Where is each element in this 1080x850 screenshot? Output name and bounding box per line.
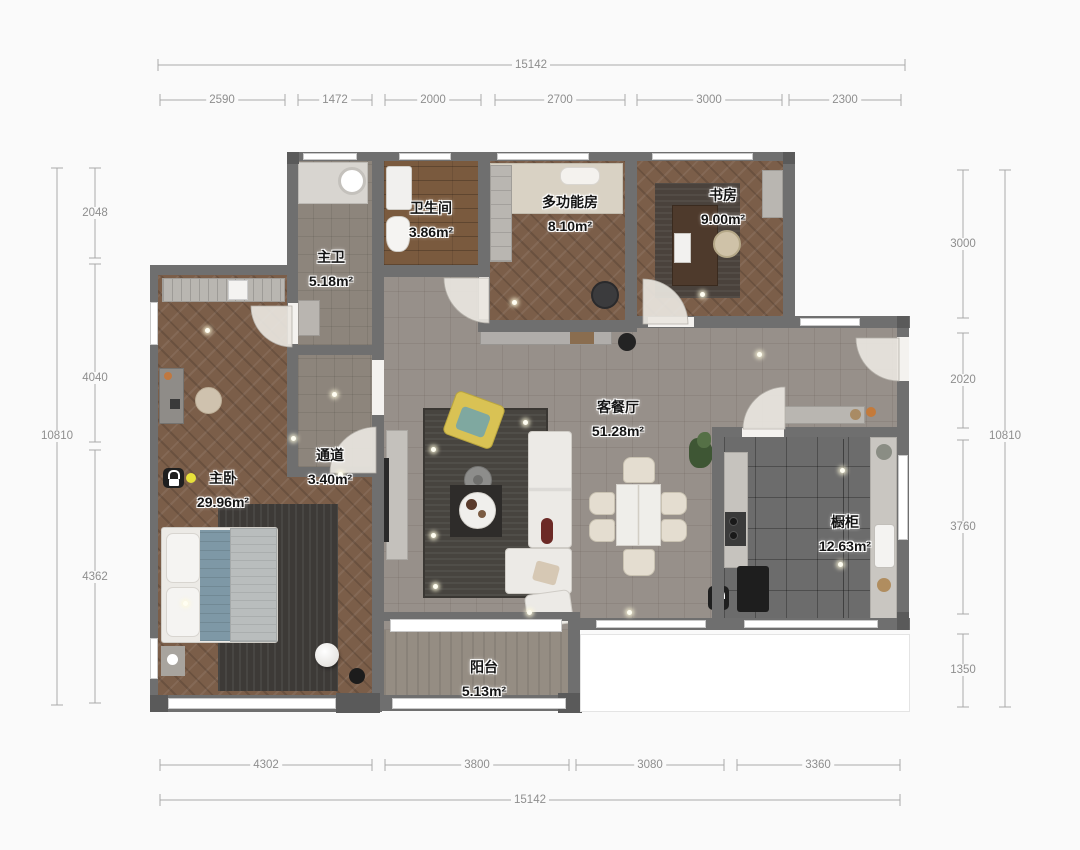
kitchen-sink <box>874 524 895 568</box>
side-table-top <box>473 475 483 485</box>
study-cabinet <box>762 170 783 218</box>
dining-chair <box>589 519 615 542</box>
dim-bottom-seg: 3080 <box>634 759 666 771</box>
ceiling-light <box>433 584 438 589</box>
dim-bottom-total: 15142 <box>511 794 549 806</box>
window-top-masterbath <box>303 153 357 160</box>
kitchen-counter-left <box>724 452 748 568</box>
dim-top-seg: 3000 <box>693 94 725 106</box>
multi-cabinet <box>490 165 512 262</box>
window-right-kitchen <box>898 455 908 540</box>
dim-bottom-seg: 3360 <box>802 759 834 771</box>
room-area: 51.28m² <box>592 420 644 444</box>
room-name: 主卫 <box>309 246 353 270</box>
ceiling-light <box>205 328 210 333</box>
window-living-south <box>596 620 706 628</box>
window-top-multiroom <box>497 153 589 160</box>
room-label-balcony: 阳台 5.13m² <box>462 656 506 704</box>
ceiling-light <box>838 562 843 567</box>
study-chair <box>713 230 741 258</box>
ceiling-light <box>431 447 436 452</box>
dim-top-seg: 2000 <box>417 94 449 106</box>
hall-chair-black <box>618 333 636 351</box>
room-name: 橱柜 <box>819 511 871 535</box>
tray-item <box>478 510 486 518</box>
wardrobe <box>162 278 285 302</box>
dim-top-total: 15142 <box>512 59 550 71</box>
wall-corner <box>783 152 795 164</box>
ceiling-light <box>840 468 845 473</box>
bed-pillow <box>166 587 200 637</box>
room-name: 书房 <box>701 184 745 208</box>
door-leaf-entry <box>897 337 909 381</box>
door-leaf-bathroom <box>479 277 489 319</box>
dim-top-seg: 2590 <box>206 94 238 106</box>
fridge <box>737 566 769 612</box>
dim-left-seg: 4040 <box>79 372 111 384</box>
room-label-corridor: 通道 3.40m² <box>308 444 352 492</box>
dim-top-seg: 2300 <box>829 94 861 106</box>
room-name: 卫生间 <box>409 197 453 221</box>
room-name: 多功能房 <box>542 191 598 215</box>
room-area: 5.18m² <box>309 270 353 294</box>
exterior-void <box>795 150 910 316</box>
laptop <box>674 233 691 263</box>
plant-leaf <box>697 432 711 448</box>
ceiling-light <box>627 610 632 615</box>
dim-left-total: 10810 <box>38 430 76 442</box>
room-area: 12.63m² <box>819 535 871 559</box>
dim-right-total: 10810 <box>986 430 1024 442</box>
wall-kitchen-top <box>712 427 897 437</box>
ceiling-light <box>332 392 337 397</box>
ceiling-light <box>183 601 188 606</box>
room-area: 8.10m² <box>542 215 598 239</box>
ceiling-light <box>700 292 705 297</box>
wall-bedroom-top <box>150 265 298 275</box>
window-bedroom-south <box>168 698 336 709</box>
window-foyer-top <box>800 318 860 326</box>
window-top-study <box>652 153 753 160</box>
washing-machine <box>338 167 366 195</box>
coffee-table-tray <box>459 492 496 529</box>
wall-corner <box>287 152 299 164</box>
floor-lamp-sphere <box>315 643 339 667</box>
vase-red <box>541 518 553 544</box>
exterior-ledge <box>580 634 910 712</box>
sideboard-plant-pot <box>866 407 876 417</box>
door-leaf-kitchen <box>742 428 784 437</box>
toilet <box>386 216 410 252</box>
wall-study-right <box>783 152 795 327</box>
bed-pillow <box>166 533 200 583</box>
wall-corner <box>336 693 380 713</box>
room-label-study: 书房 9.00m² <box>701 184 745 232</box>
yellow-dot-marker <box>186 473 196 483</box>
room-label-bathroom: 卫生间 3.86m² <box>409 197 453 245</box>
ceiling-light <box>431 533 436 538</box>
dining-chair <box>589 492 615 515</box>
wall-corner <box>897 612 909 630</box>
wall-multi-bottom <box>478 320 637 332</box>
wall-corner <box>150 695 168 712</box>
bed-blanket-grey <box>230 528 277 642</box>
room-label-master-bath: 主卫 5.18m² <box>309 246 353 294</box>
multi-pillows <box>560 167 600 185</box>
wall-corner <box>897 316 909 328</box>
door-opening-study <box>648 317 694 327</box>
desk-item <box>170 399 180 409</box>
floorplan-canvas: 主卫 5.18m² 卫生间 3.86m² 多功能房 8.10m² 书房 9.00… <box>0 0 1080 850</box>
stove-burner <box>729 517 738 526</box>
round-rug <box>195 387 222 414</box>
wall-bathroom-bottom <box>372 265 487 277</box>
door-opening-bedroom <box>288 303 298 344</box>
room-area: 29.96m² <box>197 491 249 515</box>
dim-right-seg: 3760 <box>947 521 979 533</box>
room-label-master-bedroom: 主卧 29.96m² <box>197 467 249 515</box>
room-name: 阳台 <box>462 656 506 680</box>
wall-kitchen-left <box>712 427 724 630</box>
room-label-living-dining: 客餐厅 51.28m² <box>592 396 644 444</box>
hall-console-wood <box>570 332 594 344</box>
window-kitchen-south <box>744 620 878 628</box>
stove-burner <box>729 531 738 540</box>
kitchen-plant <box>876 444 892 460</box>
window-left-bedroom <box>150 302 158 345</box>
wall-multi-right <box>625 160 637 332</box>
shower-unit <box>298 300 320 336</box>
dim-top-seg: 1472 <box>319 94 351 106</box>
tray-item <box>466 499 477 510</box>
door-opening-corridor <box>372 360 384 415</box>
stool-black <box>349 668 365 684</box>
lock-icon <box>163 468 184 488</box>
ceiling-light <box>757 352 762 357</box>
dim-top-seg: 2700 <box>544 94 576 106</box>
dim-bottom-seg: 4302 <box>250 759 282 771</box>
window-top-bathroom <box>399 153 451 160</box>
dim-right-seg: 3000 <box>947 238 979 250</box>
dining-table <box>616 484 661 546</box>
sideboard-tray <box>850 409 861 420</box>
dim-left-seg: 4362 <box>79 571 111 583</box>
ceiling-light <box>527 610 532 615</box>
ceiling-light <box>291 436 296 441</box>
dining-chair <box>623 549 655 576</box>
room-name: 客餐厅 <box>592 396 644 420</box>
room-label-kitchen: 橱柜 12.63m² <box>819 511 871 559</box>
wardrobe-box <box>228 280 248 300</box>
room-name: 通道 <box>308 444 352 468</box>
room-area: 3.86m² <box>409 221 453 245</box>
wall-corridor-top <box>288 345 384 355</box>
dim-right-seg: 2020 <box>947 374 979 386</box>
room-area: 3.40m² <box>308 468 352 492</box>
window-balcony-inner <box>390 619 562 632</box>
bed-blanket-blue <box>200 530 230 641</box>
dim-left-seg: 2048 <box>79 207 111 219</box>
dim-bottom-seg: 3800 <box>461 759 493 771</box>
dim-right-seg: 1350 <box>947 664 979 676</box>
tv-cabinet <box>386 430 408 560</box>
room-area: 9.00m² <box>701 208 745 232</box>
wall-center-spine <box>372 160 384 711</box>
room-label-multi-room: 多功能房 8.10m² <box>542 191 598 239</box>
desk-vase <box>164 372 172 380</box>
tv <box>384 458 389 542</box>
ceiling-light <box>523 420 528 425</box>
room-name: 主卧 <box>197 467 249 491</box>
dining-chair <box>623 457 655 483</box>
multi-chair <box>591 281 619 309</box>
cutting-board <box>877 578 891 592</box>
ceiling-light <box>512 300 517 305</box>
room-area: 5.13m² <box>462 680 506 704</box>
dining-chair <box>661 519 687 542</box>
window-left-bedroom-2 <box>150 638 158 679</box>
mat-vase <box>167 654 178 665</box>
dining-chair <box>661 492 687 515</box>
